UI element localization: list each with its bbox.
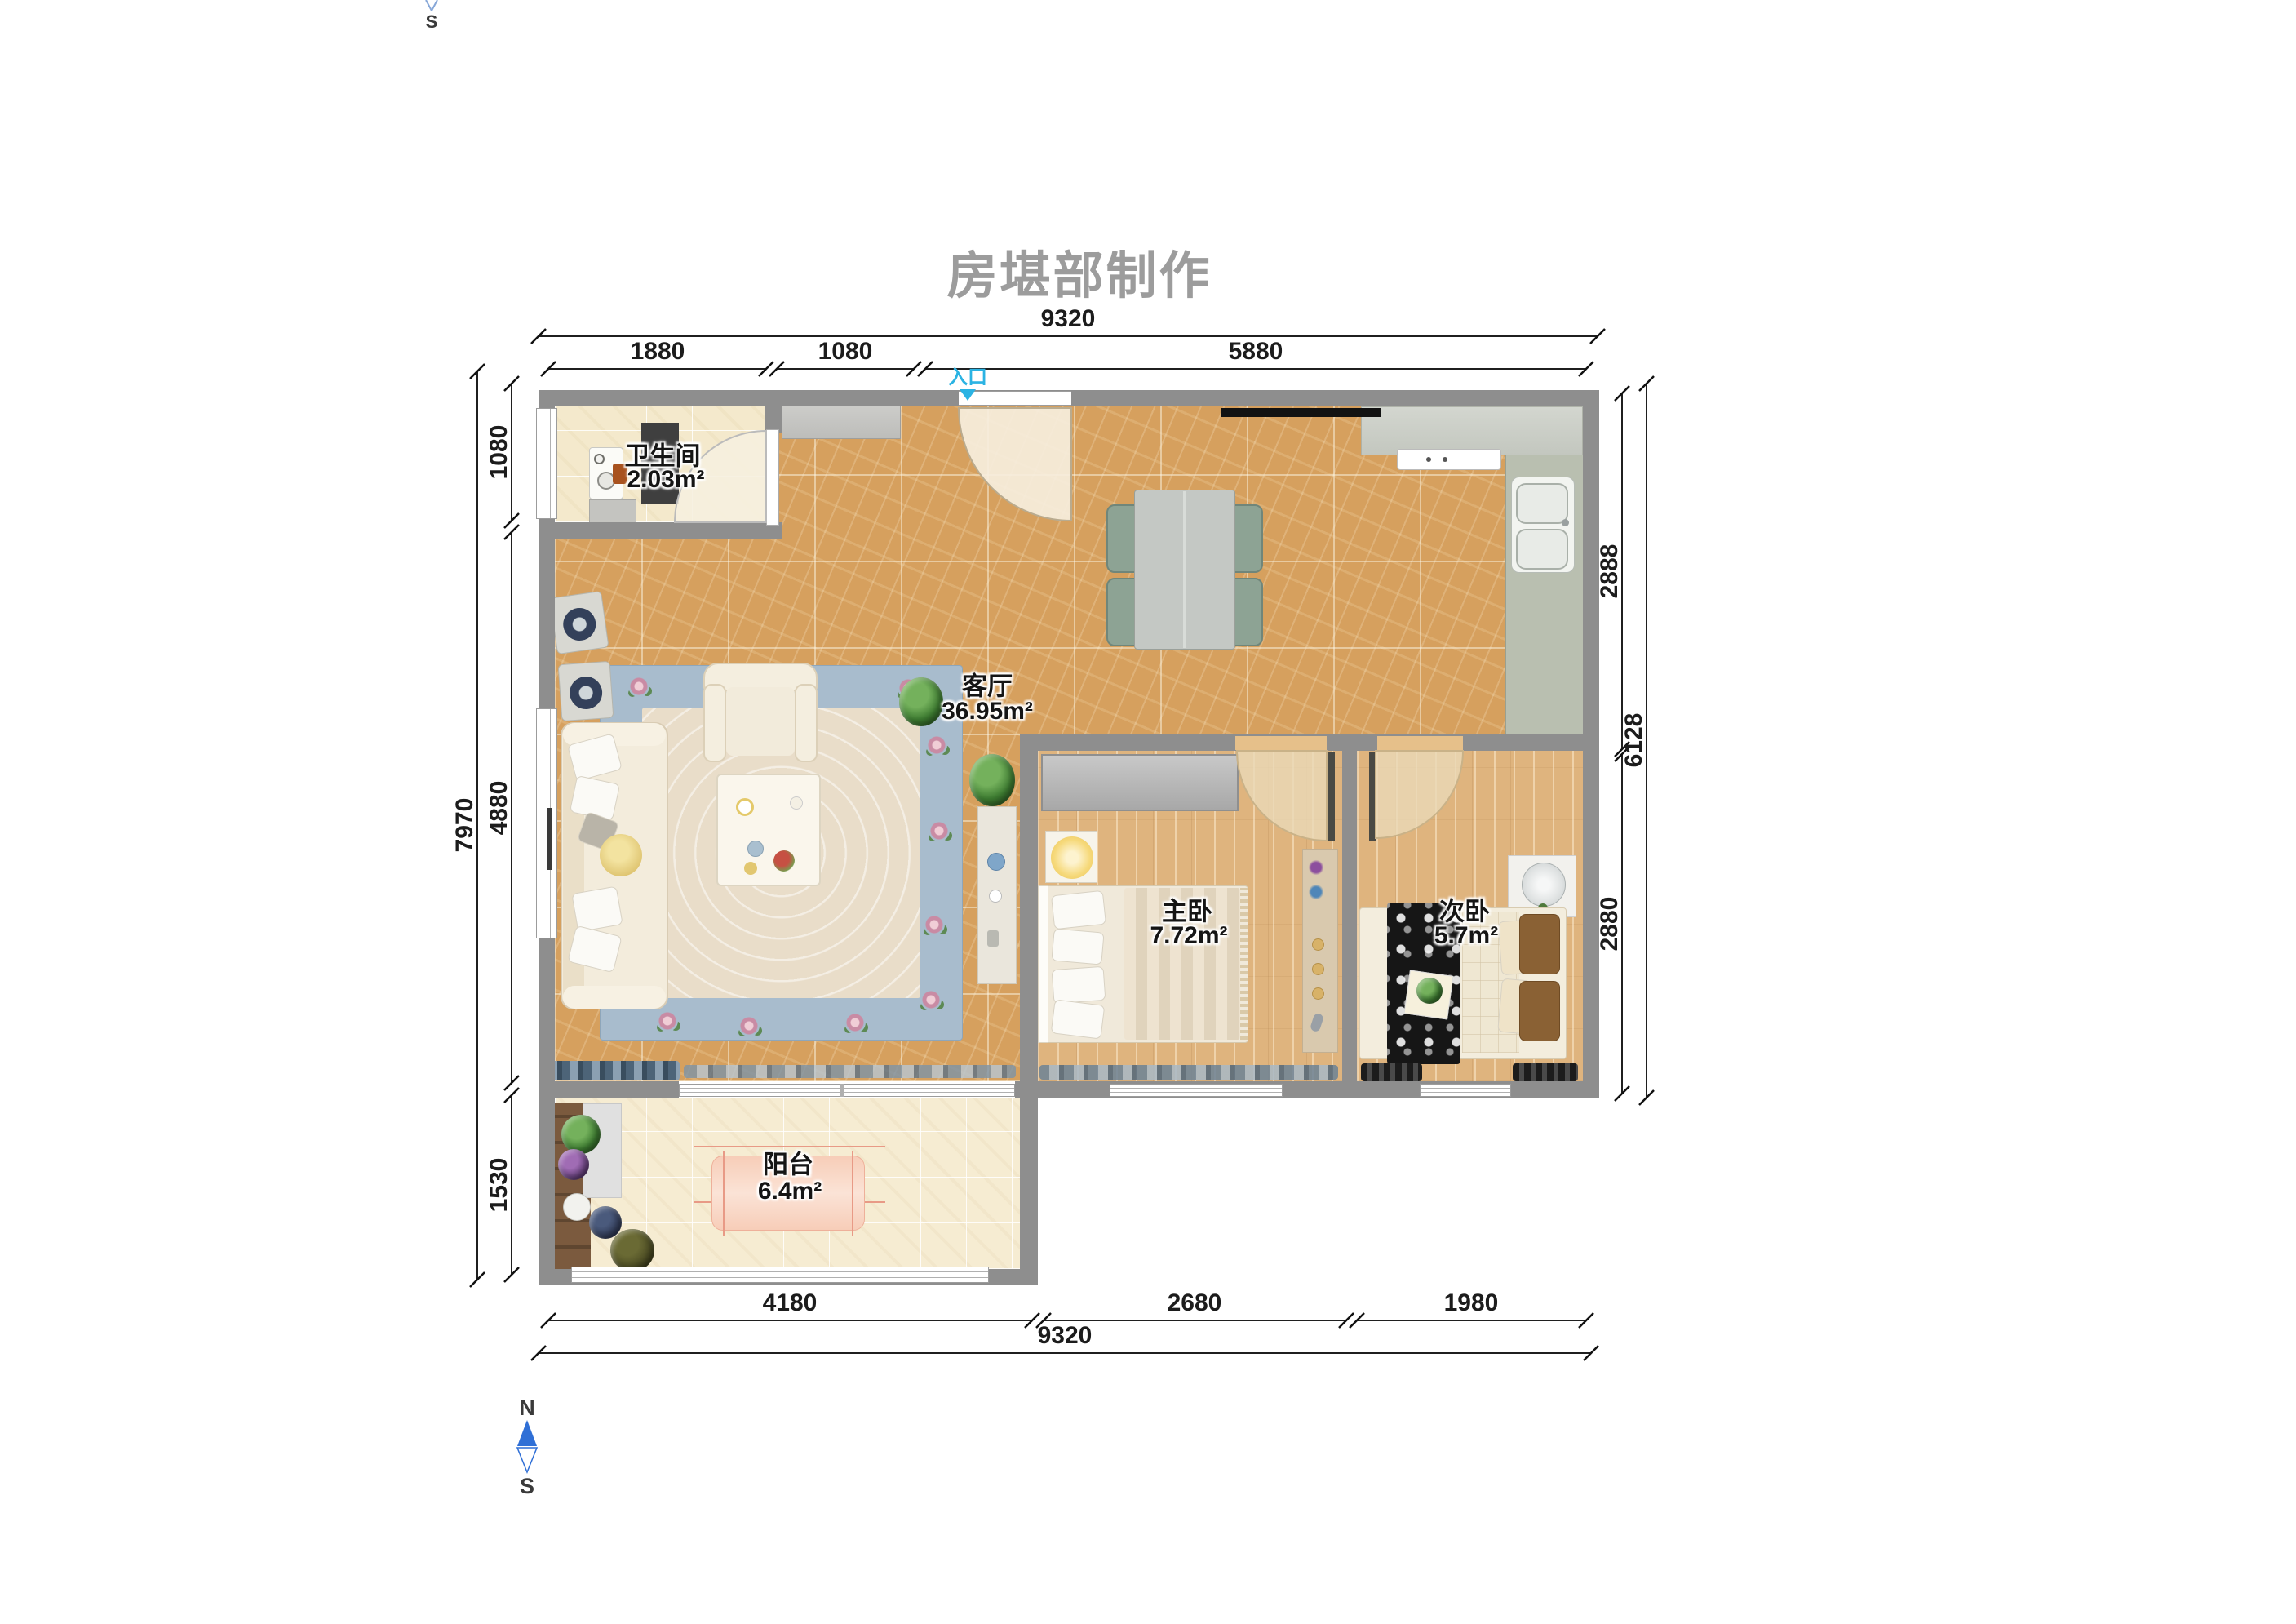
master-door-opening (1235, 736, 1327, 750)
living-window (536, 708, 557, 938)
drying-rack-post (852, 1151, 853, 1236)
dim-left-seg3: 1530 (485, 1158, 512, 1213)
balcony-plant-olive (610, 1229, 654, 1271)
kitchen-sink-basin (1516, 529, 1568, 570)
wall-bedroom-divider (1342, 751, 1357, 1098)
dim-right-overall: 6128 (1620, 713, 1647, 768)
rug-flower (926, 734, 947, 756)
curtain (684, 1065, 1016, 1078)
bathroom-door-leaf (766, 429, 779, 526)
master-door-leaf (1328, 752, 1335, 841)
kitchen-faucet (1562, 519, 1569, 526)
compass-south-needle-icon (517, 1448, 537, 1472)
dresser-knob (1312, 938, 1324, 951)
coffee-table-plate (736, 798, 754, 816)
sofa-pillow (571, 886, 623, 933)
master-area: 7.72m² (1150, 922, 1227, 950)
second-bed-plant (1416, 978, 1443, 1004)
kitchen-sink-basin (1516, 483, 1568, 524)
kitchen-range-knob (1443, 457, 1447, 462)
master-wardrobe (1041, 754, 1239, 811)
floor-speaker (558, 661, 614, 721)
dim-bottom-overall: 9320 (1038, 1322, 1093, 1349)
sofa-pouf (600, 834, 642, 876)
master-bed-fringe (1240, 888, 1248, 1040)
second-curtain (1361, 1063, 1422, 1081)
balcony-name: 阳台 (763, 1144, 813, 1181)
dim-right-seg1: 2888 (1596, 544, 1623, 599)
balcony-plant-dish (563, 1193, 591, 1221)
curtain (541, 1061, 680, 1080)
dim-bottom-seg2: 2680 (1168, 1289, 1222, 1316)
balcony-plant-green (561, 1115, 601, 1154)
master-bed-pillow (1052, 966, 1106, 1004)
kitchen-range-knob (1426, 457, 1431, 462)
tv-wall-unit (1221, 408, 1381, 417)
compass-south-label: S (520, 1474, 534, 1498)
balcony-sliding-door (679, 1084, 1015, 1097)
master-bedside-lamp (1045, 831, 1097, 883)
bathroom-area: 2.03m² (627, 466, 704, 494)
dim-left-overall: 7970 (451, 798, 478, 853)
dim-bottom-seg3: 1980 (1444, 1289, 1499, 1316)
wall-bathroom-bottom (539, 522, 782, 539)
rug-flower (920, 989, 942, 1010)
drying-rack-post (723, 1151, 725, 1236)
sofa-armrest (563, 986, 666, 1009)
master-window (1110, 1084, 1283, 1097)
master-bed-pillow (1051, 928, 1104, 965)
second-area: 5.7m² (1434, 922, 1498, 950)
tv-stand-item (987, 930, 999, 947)
armchair-seat (726, 687, 795, 756)
compass-top-needle-icon (426, 0, 437, 11)
wall-living-bedrooms-vertical (1020, 734, 1038, 1285)
master-bed-headboard (1038, 885, 1048, 1043)
armchair-arm (795, 684, 818, 762)
floorplan-canvas: 9320 1880 1080 5880 4180 2680 1980 9320 … (0, 0, 2296, 1624)
lamp-glow-icon (1051, 836, 1093, 879)
rug-flower (628, 676, 649, 697)
dim-top-overall: 9320 (1041, 305, 1096, 332)
coffee-table-flowers (773, 850, 795, 872)
entrance-label: 入口 (948, 366, 987, 388)
dim-left-seg2: 4880 (485, 781, 512, 836)
bathroom-window (536, 408, 557, 519)
master-bed-pillow (1051, 890, 1106, 930)
rug-flower (738, 1015, 760, 1036)
wall-bedrooms-bottom (1015, 1081, 1599, 1098)
second-bed-pillow-brown (1519, 981, 1560, 1041)
dining-table-gap (1183, 491, 1186, 648)
dresser-knob (1312, 987, 1324, 1000)
tv-stand-dish (989, 890, 1002, 903)
dresser-knob (1312, 963, 1324, 975)
armchair-arm (703, 684, 726, 762)
potted-plant (899, 677, 943, 726)
speaker-cone-icon (569, 676, 604, 711)
second-door-opening (1377, 736, 1463, 750)
second-door-leaf (1369, 752, 1376, 841)
sliding-door-handle (840, 1084, 844, 1097)
dim-top-seg3: 5880 (1229, 338, 1283, 365)
second-bed-pillow-brown (1519, 914, 1560, 974)
rug-flower (929, 820, 950, 841)
second-window (1420, 1084, 1511, 1097)
dim-top-seg1: 1880 (631, 338, 685, 365)
bathroom-mirror (594, 454, 605, 464)
compass-north-needle-icon (517, 1420, 537, 1446)
dim-top-seg2: 1080 (818, 338, 873, 365)
dresser-flower-decal (1307, 883, 1325, 901)
dim-right-seg2: 2880 (1596, 897, 1623, 952)
rug-flower (924, 914, 945, 935)
balcony-area: 6.4m² (758, 1178, 822, 1205)
kitchen-counter-top (1361, 406, 1583, 455)
coffee-table-flower-yellow (744, 862, 757, 875)
balcony-window (571, 1267, 989, 1283)
compass-north-label: N (519, 1395, 535, 1420)
living-area: 36.95m² (942, 698, 1033, 725)
dresser-flower-decal (1307, 859, 1325, 876)
second-curtain (1513, 1063, 1578, 1081)
coffee-table-cup (747, 841, 764, 857)
speaker-cone-icon (561, 606, 598, 642)
tv-stand-bowl (987, 853, 1005, 871)
coffee-table-dish (790, 796, 803, 810)
master-curtain (1039, 1065, 1338, 1080)
compass-top-south-label: S (426, 11, 438, 32)
living-window-radiator (547, 808, 552, 870)
kitchen-range (1397, 449, 1501, 470)
rug-flower (844, 1012, 866, 1033)
floor-speaker (549, 591, 609, 654)
dim-left-seg1: 1080 (485, 425, 512, 480)
compass-top-partial: S (426, 0, 438, 32)
page-title: 房堪部制作 (946, 234, 1212, 308)
entrance-opening (959, 391, 1071, 406)
master-bed-pillow (1051, 999, 1106, 1039)
compass: N S (517, 1395, 537, 1498)
rug-flower (657, 1010, 678, 1032)
living-name: 客厅 (962, 666, 1013, 703)
wall-balcony-top-left (539, 1081, 679, 1098)
nightstand-lamp-icon (1522, 863, 1566, 907)
dim-bottom-seg1: 4180 (763, 1289, 818, 1316)
coffee-table (716, 774, 821, 886)
potted-plant (969, 754, 1015, 806)
balcony-plant-purple (558, 1149, 589, 1180)
